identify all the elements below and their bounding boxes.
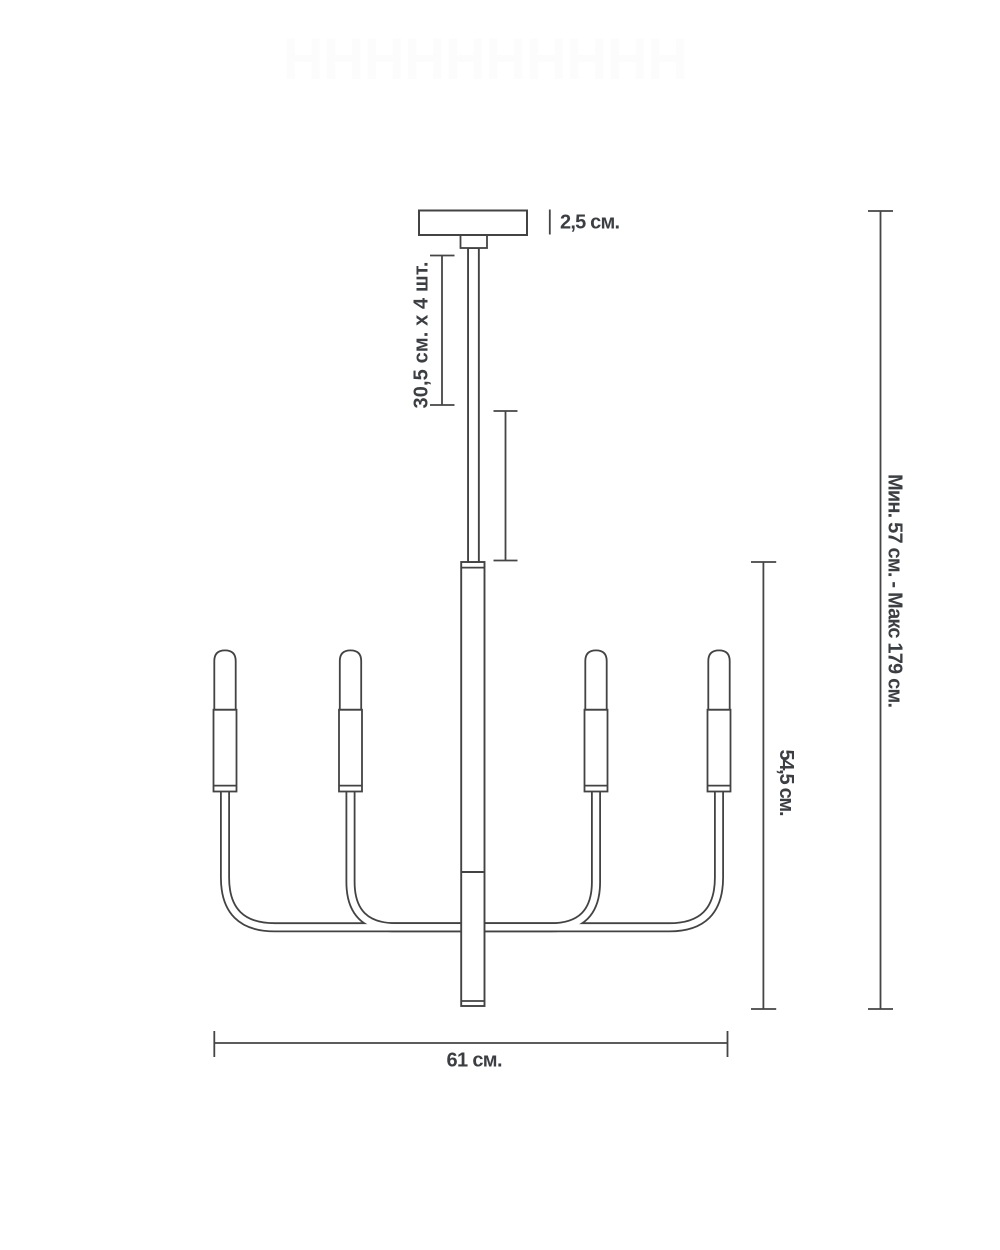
svg-text:54,5 см.: 54,5 см. xyxy=(775,750,797,817)
svg-text:30,5 см. x 4 шт.: 30,5 см. x 4 шт. xyxy=(411,262,433,409)
svg-text:61 см.: 61 см. xyxy=(447,1050,503,1072)
svg-text:Мин. 57 см. - Макс 179 см.: Мин. 57 см. - Макс 179 см. xyxy=(884,474,906,708)
svg-text:2,5 см.: 2,5 см. xyxy=(560,212,620,234)
svg-text:НННННННННН: НННННННННН xyxy=(283,27,688,92)
